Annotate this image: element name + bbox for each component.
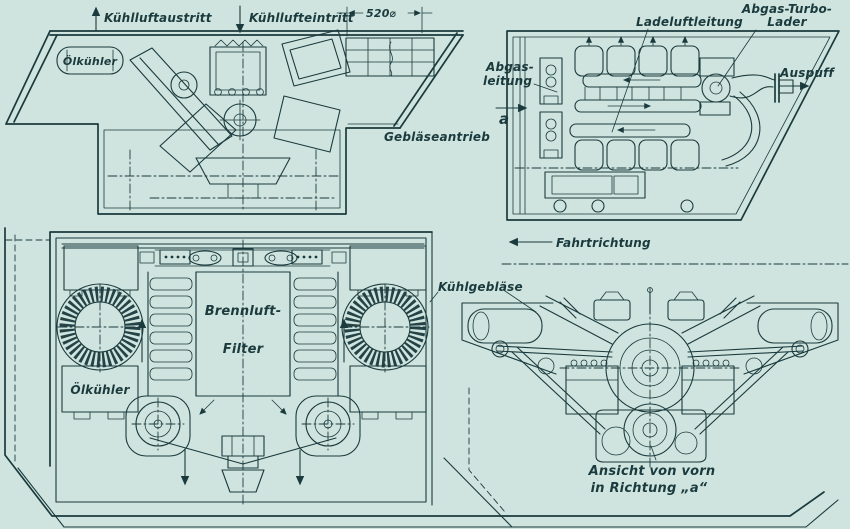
oil-cooler-bottom-right [350,366,426,419]
label-coolant-air-in: Kühllufteintritt [249,11,355,25]
hull-dashed-front [469,388,505,512]
view-deck-plan [5,228,838,527]
caption-leader [651,446,656,460]
view-plan-engine [496,29,839,220]
view-cross-section [6,6,463,214]
label-charge-air-line: Ladeluftleitung [636,15,743,29]
charge-air-leader [612,29,648,132]
label-direction-of-travel: Fahrtrichtung [556,236,651,250]
fan-drum-right [744,303,838,374]
engine-installation-diagram: Kühlluftaustritt Kühllufteintritt 520⌀ Ö… [0,0,850,529]
label-exhaust-line-1: Abgas- [485,60,534,74]
cylinder-arrows [589,37,685,46]
hull-right-slope [394,33,463,128]
deck-line [50,31,463,35]
direction-of-travel-group [502,242,848,264]
fan-drum-left [462,303,556,374]
hull-left-slope [6,31,57,124]
cooling-fan-left [57,284,144,372]
label-exhaust-turbo-1: Abgas-Turbo- [741,2,832,16]
cylinder-bank-right [290,272,338,396]
hull-plan-outline [507,31,839,220]
exhaust-line-brackets [540,58,562,158]
label-fan-diameter: 520⌀ [366,7,397,20]
front-bank-left [538,358,618,414]
left-air-duct [130,48,232,150]
lower-gear-housing [596,404,706,462]
cylinder-bank-left [148,272,196,396]
label-exhaust-outlet: Auspuff [779,66,836,80]
front-bank-right [682,358,762,414]
label-blower-drive: Gebläseantrieb [384,130,490,144]
exhaust-line-leader [534,84,557,92]
central-gear-housing [560,288,740,468]
pulley-circle [171,72,197,98]
section-centerlines [108,42,338,212]
label-cooling-fan: Kühlgebläse [438,280,523,294]
label-combustion-air-1: Brennluft- [205,304,282,319]
label-direction-marker: a [499,110,509,128]
label-combustion-air-2: Filter [223,342,265,357]
hull-inner-wall [104,130,340,208]
hull-dashed-edge [6,235,50,462]
label-caption-1: Ansicht von vorn [588,464,716,479]
cooling-fan-grid [346,38,434,76]
cylinder-rows [575,46,699,170]
label-exhaust-line-2: leitung [483,74,532,88]
label-oil-cooler-bottom: Ölkühler [70,382,130,397]
charge-air-pipes [570,74,701,137]
label-oil-cooler-top: Ölkühler [63,54,118,68]
cooling-fan-right [342,284,429,372]
right-upper-box [282,30,350,86]
valve-covers-front [560,288,740,321]
label-caption-2: in Richtung „a“ [591,481,708,496]
oil-pan [545,172,693,212]
label-exhaust-turbo-2: Lader [767,15,807,29]
hull-lower-box [6,124,400,214]
engine-cross-section [130,30,350,198]
label-coolant-air-out: Kühlluftaustritt [104,11,213,25]
right-lower-box [274,96,340,152]
technical-diagram-page: Kühlluftaustritt Kühllufteintritt 520⌀ Ö… [0,0,850,529]
